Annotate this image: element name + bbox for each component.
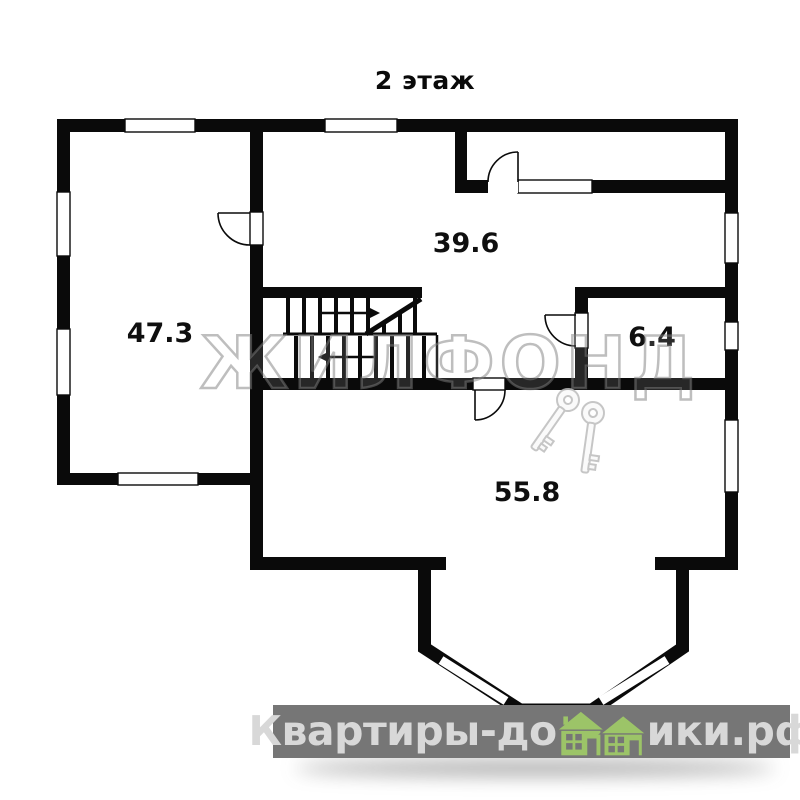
door-room47-arc [218, 213, 250, 245]
window-left-1 [57, 192, 70, 256]
wall-stair-top [263, 287, 422, 298]
bay-walls [425, 568, 683, 710]
staircase [283, 298, 437, 378]
wall-bottom55-right [655, 557, 738, 570]
house-right-icon [600, 715, 646, 755]
window-hall-inner [518, 180, 592, 193]
window-right-2 [725, 322, 738, 350]
door-hall-arc [488, 152, 518, 182]
room-label-47-3: 47.3 [127, 318, 194, 349]
room-label-55-8: 55.8 [494, 477, 561, 508]
house-left-icon [557, 710, 605, 755]
bay-window-left [441, 660, 506, 701]
door-hall-opening [488, 180, 518, 193]
windows [57, 119, 738, 492]
floorplan-image: 2 этаж [0, 0, 800, 800]
floorplan-svg: 47.3 39.6 6.4 55.8 [0, 0, 800, 800]
stair-arrow-down [318, 351, 378, 363]
wall-vertical-center [250, 132, 263, 570]
door-room64-leaf [575, 313, 588, 348]
window-top-1 [125, 119, 195, 132]
stair-arrow-up [318, 307, 380, 319]
door-room55-arc [475, 390, 505, 420]
footer-brand-left: Квартиры-до [248, 705, 556, 758]
window-right-3 [725, 420, 738, 492]
wall-room64-top [575, 287, 725, 298]
window-bottom-room47 [118, 473, 198, 485]
bay-window [425, 568, 683, 710]
door-room64-arc [545, 315, 576, 346]
footer-watermark-bar: Квартиры-до ики.рф [273, 705, 790, 758]
door-room55-leaf [473, 378, 505, 390]
room-label-6-4: 6.4 [628, 322, 676, 353]
footer-shadow [295, 760, 775, 776]
window-left-2 [57, 329, 70, 395]
footer-brand-right: ики.рф [647, 705, 800, 758]
wall-bottom55-left [250, 557, 446, 570]
door-room47-leaf [250, 212, 263, 245]
window-right-1 [725, 213, 738, 263]
stair-break-diagonal [366, 299, 421, 334]
window-top-2 [325, 119, 397, 132]
room-label-39-6: 39.6 [433, 228, 500, 259]
wall-hall-vertical [455, 132, 467, 182]
wall-left-outer [57, 119, 70, 485]
green-houses-icon [556, 708, 648, 758]
bay-window-right [601, 660, 667, 701]
